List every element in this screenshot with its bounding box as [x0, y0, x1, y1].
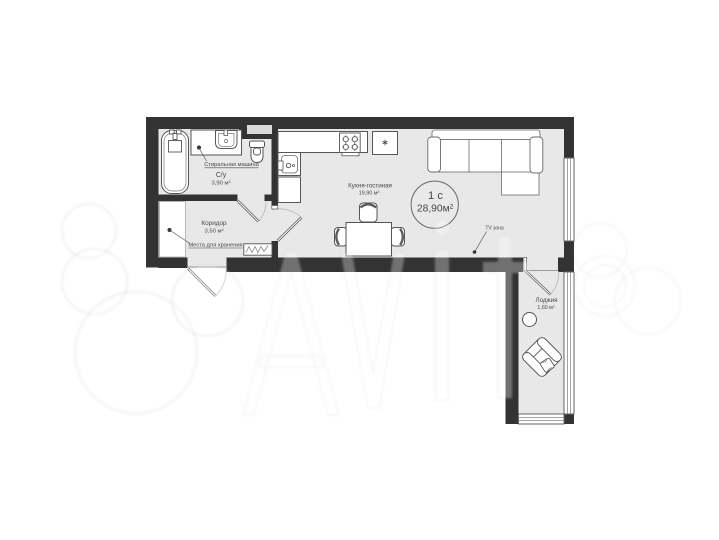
svg-text:19,90 м²: 19,90 м² — [359, 191, 380, 197]
svg-text:Места для хранения: Места для хранения — [188, 242, 242, 248]
svg-text:Лоджия: Лоджия — [536, 297, 558, 304]
svg-text:28,90м²: 28,90м² — [417, 204, 454, 215]
svg-text:Стиральная машина: Стиральная машина — [204, 162, 259, 168]
svg-text:3,50 м²: 3,50 м² — [204, 229, 223, 235]
svg-text:С/у: С/у — [216, 172, 227, 179]
svg-text:3,90 м²: 3,90 м² — [211, 181, 230, 187]
svg-text:1,60 м²: 1,60 м² — [537, 305, 554, 311]
svg-text:Кухня-гостиная: Кухня-гостиная — [348, 183, 392, 190]
svg-text:1 с: 1 с — [428, 190, 443, 202]
svg-text:TV зона: TV зона — [485, 226, 504, 232]
svg-text:Коридор: Коридор — [201, 220, 227, 227]
